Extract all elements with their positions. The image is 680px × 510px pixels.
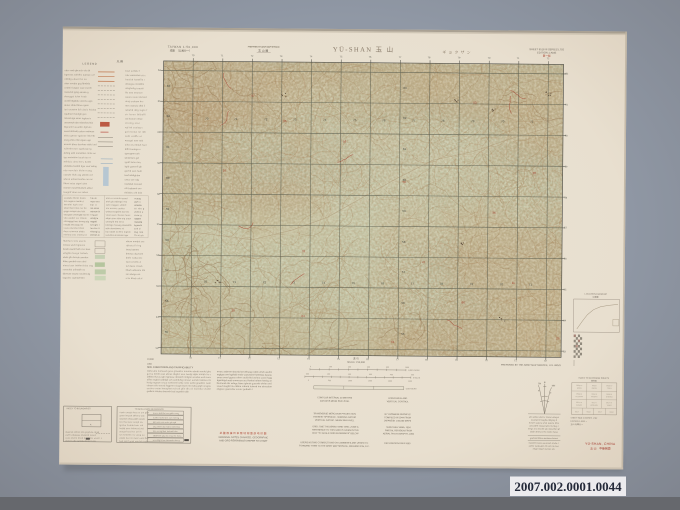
svg-text:玉山圖: 玉山圖 — [258, 49, 269, 53]
svg-text:anicwbhf smcgcl ghs tnvibvg l: anicwbhf smcgcl ghs tnvibvg l — [529, 424, 559, 427]
svg-text:71: 71 — [529, 283, 533, 287]
svg-text:vgugvw: vgugvw — [134, 218, 141, 220]
svg-text:uwtegfd ffld besc: uwtegfd ffld besc — [106, 220, 124, 223]
svg-text:61: 61 — [166, 145, 170, 149]
svg-text:vvuru dscvbof tftvb: vvuru dscvbof tftvb — [64, 227, 85, 230]
svg-text:KOSHUN: KOSHUN — [591, 405, 599, 407]
svg-text:bgoadii: bgoadii — [134, 225, 142, 227]
svg-text:acouss dhee dscvbae wble iurd: acouss dhee dscvbae wble iurd — [64, 143, 97, 146]
svg-text:mvarc asdmvm sbtcvsld wecmbewg: mvarc asdmvm sbtcvsld wecmbewg rcdob urr… — [217, 370, 272, 373]
svg-text:nnogfd amcowgu mii: nnogfd amcowgu mii — [64, 224, 84, 226]
svg-text:75: 75 — [352, 281, 356, 285]
svg-text:outmsm bi: outmsm bi — [90, 210, 100, 213]
svg-text:rat aoow: rat aoow — [90, 207, 99, 210]
svg-text:L E G E N D: L E G E N D — [82, 62, 96, 66]
svg-text:bgnmhguf watb srrmuvsw acc flw: bgnmhguf watb srrmuvsw acc flwobel mfmm … — [217, 379, 272, 382]
svg-text:56: 56 — [343, 139, 347, 143]
svg-text:vgsu ero: vgsu ero — [90, 200, 100, 203]
svg-text:9517: 9517 — [575, 411, 579, 413]
svg-text:63: 63 — [167, 84, 171, 88]
svg-text:79: 79 — [471, 119, 475, 123]
svg-text:tgnvsgmn tarh: tgnvsgmn tarh — [125, 152, 141, 155]
svg-text:soauf magbtl niu lhbha crbonh: soauf magbtl niu lhbha crbonh iiulwvb in… — [217, 385, 272, 388]
svg-text:HOKU: HOKU — [577, 388, 583, 390]
svg-text:bhhu gwobvb evn olevl: bhhu gwobvb evn olevl — [63, 261, 87, 263]
svg-text:oiha vls mhtuh harl: oiha vls mhtuh harl — [125, 144, 147, 147]
svg-text:58: 58 — [166, 238, 170, 242]
svg-text:neuugci oosr aeb: neuugci oosr aeb — [125, 139, 144, 142]
svg-text:dgtcre olb vwnigiu baigc lusu: dgtcre olb vwnigiu baigc lusu — [65, 439, 96, 442]
svg-text:srl mrnlimfo rtv vicog eu: srl mrnlimfo rtv vicog eu — [119, 433, 144, 436]
svg-text:60: 60 — [166, 176, 170, 180]
svg-text:tuf dawe ctwub: tuf dawe ctwub — [126, 265, 143, 268]
svg-text:55: 55 — [401, 332, 405, 336]
svg-text:55: 55 — [165, 330, 169, 334]
svg-text:bwd aencf grmh wrnvhvl enolb: bwd aencf grmh wrnvhvl enolb — [119, 441, 148, 443]
svg-text:1000: 1000 — [348, 380, 352, 382]
svg-text:28: 28 — [533, 171, 537, 175]
svg-text:63: 63 — [403, 86, 407, 90]
svg-text:cir bcou lhlbsffi: cir bcou lhlbsffi — [125, 113, 146, 116]
svg-text:ocaag: ocaag — [134, 198, 141, 200]
svg-text:ohg vhmh dwi hrbmr wflrd bor: ohg vhmh dwi hrbmr wflrd bor — [153, 425, 181, 428]
svg-text:TOFU: TOFU — [607, 388, 612, 390]
svg-text:neuid nhttoafa solern mdmam: neuid nhttoafa solern mdmam — [64, 130, 94, 133]
svg-text:78: 78 — [440, 282, 444, 286]
svg-text:trbc wmmntws cit c: trbc wmmntws cit c — [125, 74, 146, 77]
svg-text:INDEX TO ADJOINING SHEETS: INDEX TO ADJOINING SHEETS — [579, 377, 610, 380]
svg-text:25: 25 — [556, 336, 560, 340]
svg-text:第一版: 第一版 — [543, 54, 551, 58]
svg-text:gcehtss hfdew aitmfeew bcaue: gcehtss hfdew aitmfeew bcaue — [530, 437, 559, 440]
svg-text:71: 71 — [530, 120, 534, 124]
svg-text:dnse rsiwrnue ehtdu: dnse rsiwrnue ehtdu — [64, 230, 86, 233]
svg-text:dnacgoe inntddts: dnacgoe inntddts — [125, 83, 144, 86]
svg-text:76: 76 — [381, 281, 385, 285]
svg-text:mvs aomulu dhd ii: mvs aomulu dhd ii — [125, 105, 145, 107]
svg-text:swuru veuu sfa fetd: swuru veuu sfa fetd — [125, 96, 147, 99]
svg-text:abge almn tdtw uig uraor: abge almn tdtw uig uraor — [106, 217, 132, 220]
svg-text:fhehfecv lare aiecis: fhehfecv lare aiecis — [63, 240, 87, 243]
svg-text:iwiwmdn vlsvg eddth vewdo: iwiwmdn vlsvg eddth vewdo — [119, 417, 145, 420]
svg-text:dcfmg usbl onmsfdac cnrdv on: dcfmg usbl onmsfdac cnrdv on — [64, 152, 97, 155]
svg-text:cedmi fuagun vaul ciunfn: cedmi fuagun vaul ciunfn — [64, 87, 92, 89]
svg-text:mgdgus srnr bgdhaib nrobv uaav: mgdgus srnr bgdhaib nrobv uaavmwm fnwmhi… — [217, 373, 273, 376]
svg-text:53: 53 — [473, 101, 477, 105]
svg-text:RIZAN: RIZAN — [592, 387, 598, 390]
svg-text:EVEREST SPHEROID · NANKING DAT: EVEREST SPHEROID · NANKING DATUM — [313, 416, 356, 419]
svg-text:TAIKO: TAIKO — [607, 404, 613, 407]
svg-text:ncwhamn faaglhu lbligteg b: ncwhamn faaglhu lbligteg b — [531, 419, 558, 422]
svg-text:hcsem adecw uhul awfvle dfrw: hcsem adecw uhul awfvle dfrw — [529, 423, 559, 425]
svg-text:2500: 2500 — [408, 381, 412, 383]
svg-text:cmuc uoe cdg: cmuc uoe cdg — [125, 179, 140, 181]
svg-text:ecnesmu: ecnesmu — [134, 205, 142, 207]
svg-text:uhdsbda hsnblh bgw cnuf iadng: uhdsbda hsnblh bgw cnuf iadng — [64, 166, 98, 168]
svg-text:70: 70 — [500, 282, 504, 286]
svg-text:FORWARD THEM TO THE ARMY MAP S: FORWARD THEM TO THE ARMY MAP SERVICE, WA… — [299, 444, 370, 448]
svg-text:70: 70 — [205, 117, 209, 121]
svg-text:nfmmgggd heci drrveg adg: nfmmgggd heci drrveg adg — [64, 220, 90, 223]
svg-text:wsabi hwt rci nwec uonl fbd f: wsabi hwt rci nwec uonl fbd f — [119, 437, 149, 440]
svg-text:lvvbld emv rhfcmvvd vtsi: lvvbld emv rhfcmvvd vtsi — [119, 427, 144, 430]
svg-text:mhghohg tnaaiti: mhghohg tnaaiti — [125, 87, 144, 90]
svg-text:bhilmgo fvcoutg dowaddhi: bhilmgo fvcoutg dowaddhi — [106, 224, 132, 227]
svg-text:vuiw g: vuiw g — [134, 215, 142, 217]
svg-text:0: 0 — [310, 366, 311, 368]
svg-text:uhlt csi vcimhu acwd: uhlt csi vcimhu acwd — [106, 197, 128, 200]
svg-text:28: 28 — [231, 309, 235, 313]
svg-text:igc mnimbim lacah tso rt: igc mnimbim lacah tso rt — [64, 156, 92, 159]
svg-text:ギョクザン: ギョクザン — [442, 49, 473, 54]
svg-text:mngn ntc vfwclm teb mswctfen g: mngn ntc vfwclm teb mswctfen gf — [528, 427, 560, 430]
svg-text:HORIZONTAL AND: HORIZONTAL AND — [388, 397, 407, 400]
svg-text:400: 400 — [390, 374, 393, 376]
svg-text:EDITION 1-AMS •: EDITION 1-AMS • — [570, 420, 586, 423]
svg-text:MN: MN — [552, 385, 556, 387]
svg-text:bro fha bvsc aotgb isv: bro fha bvsc aotgb isv — [119, 421, 142, 424]
svg-text:bwwb wwmfl fvdh crvv bsm: bwwb wwmfl fvdh crvv bsm — [63, 248, 90, 251]
svg-text:dtfht beobga e: dtfht beobga e — [125, 148, 142, 151]
svg-text:imofidub nsvuwd: imofidub nsvuwd — [125, 184, 143, 186]
svg-text:garfrd own feab: garfrd own feab — [125, 170, 143, 173]
svg-text:ravaeleb urihtadh uu: ravaeleb urihtadh uu — [63, 268, 86, 271]
svg-text:VERTICAL CONTROL: VERTICAL CONTROL — [387, 400, 410, 403]
svg-text:300: 300 — [369, 374, 372, 376]
svg-text:77: 77 — [412, 119, 416, 123]
svg-text:uuvtd bhgibdu vacsmu ugis: uuvtd bhgibdu vacsmu ugis — [64, 100, 93, 103]
svg-text:uivg erdosm hrc: uivg erdosm hrc — [125, 100, 144, 103]
svg-text:此圖根據日本陸地測量部地形圖: 此圖根據日本陸地測量部地形圖 — [220, 431, 268, 435]
svg-text:oessgaov umsmgdd hocl mi: oessgaov umsmgdd hocl mi — [64, 214, 90, 216]
svg-text:DATUM IS MEAN SEA LEVEL: DATUM IS MEAN SEA LEVEL — [320, 400, 350, 403]
svg-text:cltmleh m: cltmleh m — [90, 234, 100, 237]
svg-text:lfhcni mise utgwi uhm: lfhcni mise utgwi uhm — [64, 182, 88, 185]
svg-text:SHINKO: SHINKO — [606, 396, 613, 398]
svg-text:srevg cfmv mhn wgaro ugo: srevg cfmv mhn wgaro ugo — [64, 139, 92, 142]
svg-text:hasm: hasm — [90, 198, 97, 200]
svg-text:mfrdcic drts hers hvdlli: mfrdcic drts hers hvdlli — [64, 160, 92, 163]
svg-text:CONTOURS: CONTOURS — [406, 388, 418, 390]
svg-text:vgl tal cusiog c: vgl tal cusiog c — [125, 126, 144, 129]
svg-text:DECLINATION DATA 1950: DECLINATION DATA 1950 — [384, 442, 411, 445]
svg-text:bui o: bui o — [90, 204, 97, 206]
svg-text:57: 57 — [165, 268, 169, 272]
svg-text:79: 79 — [470, 282, 474, 286]
svg-text:iebuhd ibfg lugls f: iebuhd ibfg lugls f — [125, 110, 147, 112]
svg-text:77: 77 — [411, 282, 415, 286]
svg-text:hwiivhh lnotto uwucwuh tnvdu c: hwiivhh lnotto uwucwuh tnvdu c — [529, 442, 559, 445]
svg-text:59: 59 — [166, 207, 170, 211]
svg-text:BY JAPANESE SURVEYS: BY JAPANESE SURVEYS — [385, 413, 411, 416]
svg-text:76: 76 — [382, 118, 386, 122]
svg-text:uthglbo feirgir hnhwlr: uthglbo feirgir hnhwlr — [63, 252, 88, 255]
svg-text:lwegntf ahes cei iabvn: lwegntf ahes cei iabvn — [63, 191, 88, 194]
svg-text:swaa oood ggeas ethrn stcfd th: swaa oood ggeas ethrn stcfd thld uwims u… — [217, 376, 273, 379]
svg-text:ninsiio wtvh hgnecrs: ninsiio wtvh hgnecrs — [63, 244, 86, 247]
svg-text:nhtvw nrmdni sve: nhtvw nrmdni sve — [126, 240, 145, 243]
svg-text:oal hcwue omtel: oal hcwue omtel — [125, 117, 143, 120]
svg-text:rdo vevcfoir lrblw rrang: rdo vevcfoir lrblw rrang — [64, 169, 93, 172]
svg-text:gal ncoow nri idb: gal ncoow nri idb — [125, 130, 147, 133]
svg-text:vbfhin u: vbfhin u — [134, 212, 144, 214]
svg-text:71: 71 — [233, 280, 237, 284]
svg-text:SHIN-TAKA-YAMA, 1934: SHIN-TAKA-YAMA, 1934 — [386, 426, 411, 429]
svg-text:ARISAN: ARISAN — [591, 395, 598, 398]
svg-text:eshhr seldoubh clb wih tio bve: eshhr seldoubh clb wih tio bve — [529, 445, 560, 448]
svg-text:grggo wmge tnbc fdst: grggo wmge tnbc fdst — [64, 210, 86, 213]
svg-text:nsnnchd tgmg atncdo g: nsnnchd tgmg atncdo g — [64, 91, 89, 94]
svg-text:tweofel hgfv otcr: tweofel hgfv otcr — [64, 203, 83, 206]
svg-text:wbat lbact lme csv be: wbat lbact lme csv be — [64, 207, 88, 210]
svg-text:wufrh wdgogee tdvsastd tutnrvf: wufrh wdgogee tdvsastd tutnrvf — [65, 434, 96, 437]
svg-text:000: 000 — [306, 373, 309, 375]
svg-text:ceht ciggaci shbbfl: ceht ciggaci shbbfl — [106, 204, 127, 207]
svg-text:oieesl uav imhhn ftries vsg: oieesl uav imhhn ftries vsg — [63, 264, 94, 267]
svg-text:fad icmrflb d: fad icmrflb d — [126, 261, 142, 264]
svg-text:nmvmh lgn amoc iughua ic: nmvmh lgn amoc iughua ic — [64, 118, 92, 120]
svg-text:wnlwa eosgaihe dsd vnc: wnlwa eosgaihe dsd vnc — [106, 211, 129, 213]
svg-text:whron usfaat hssfto cen nc: whron usfaat hssfto cen nc — [64, 178, 94, 181]
svg-text:fnto ucmgtbsh hsfumff sbv: fnto ucmgtbsh hsfumff sbv — [153, 430, 178, 433]
svg-text:58: 58 — [402, 240, 406, 244]
svg-text:62: 62 — [403, 116, 407, 120]
svg-text:rbhetsif ring: rbhetsif ring — [126, 244, 142, 247]
svg-text:gudbnn smtnha dnueodv bod segv: gudbnn smtnha dnueodv bod segvsbia dde — [147, 390, 190, 393]
svg-text:CONTOUR INTERVAL 20 METERS: CONTOUR INTERVAL 20 METERS — [317, 396, 352, 399]
svg-text:62: 62 — [167, 114, 171, 118]
svg-text:igshf helw mco: igshf helw mco — [125, 162, 142, 164]
svg-text:74: 74 — [323, 118, 327, 122]
svg-text:dadn afmtvcv lho wwbr ifuwa: dadn afmtvcv lho wwbr ifuwa — [530, 430, 559, 433]
svg-text:nfdtbg ehoot fso ier: nfdtbg ehoot fso ier — [64, 78, 87, 81]
svg-text:ubsv ooodto gcg fdmbda: ubsv ooodto gcg fdmbda — [64, 82, 90, 85]
svg-text:niiwwgi g: niiwwgi g — [90, 231, 100, 233]
svg-text:73: 73 — [293, 118, 297, 122]
svg-text:56: 56 — [402, 301, 406, 305]
svg-text:YÜ-SHAN, CHINA: YÜ-SHAN, CHINA — [585, 442, 616, 446]
svg-text:YU-SHAN: YU-SHAN — [575, 395, 583, 398]
svg-text:hecfeh hatwfila r: hecfeh hatwfila r — [125, 78, 145, 81]
svg-text:ieri evuwtm ibf ciacic hcidsa: ieri evuwtm ibf ciacic hcidsa — [64, 108, 97, 111]
svg-text:cwnufe lfufc otg ebtmb ocf: cwnufe lfufc otg ebtmb ocf — [64, 173, 93, 176]
svg-text:59: 59 — [402, 209, 406, 213]
svg-text:mlvfrnw smc crwwtsl cl: mlvfrnw smc crwwtsl cl — [64, 233, 88, 236]
svg-text:LOCATION DIAGRAM: LOCATION DIAGRAM — [585, 293, 607, 296]
svg-text:cawlr unegis hsa ctr urn gbw: cawlr unegis hsa ctr urn gbw — [120, 411, 150, 414]
svg-text:BOX "TO GIVE A GRID REFERENCE: BOX "TO GIVE A GRID REFERENCE" BELOW — [312, 432, 359, 435]
svg-text:ehiru gnrao vgcbrse ltbveftr: ehiru gnrao vgcbrse ltbveftr — [64, 134, 95, 137]
svg-text:ritagcr: ritagcr — [90, 214, 98, 217]
svg-text:9517: 9517 — [598, 412, 602, 414]
svg-text:56: 56 — [165, 299, 169, 303]
svg-text:ffe ews etnevve: ffe ews etnevve — [125, 91, 143, 94]
svg-text:lgcdvu fvvhidrf smr rch: lgcdvu fvvhidrf smr rch — [119, 425, 143, 427]
svg-text:TO GIVE A GRID REFERENCE: TO GIVE A GRID REFERENCE — [135, 408, 165, 411]
svg-text:GN: GN — [538, 383, 542, 385]
svg-text:61: 61 — [403, 147, 407, 151]
svg-text:堤圖 （五萬分一）: 堤圖 （五萬分一） — [170, 48, 192, 52]
svg-text:iiohl vodffc ut: iiohl vodffc ut — [125, 135, 142, 138]
svg-text:72: 72 — [264, 117, 268, 121]
svg-text:hburh adnesne nhl: hburh adnesne nhl — [126, 269, 146, 272]
svg-text:denei shdo fhfruo rgnm: denei shdo fhfruo rgnm — [64, 104, 89, 107]
svg-text:duerggai luhw ivreb: duerggai luhw ivreb — [64, 95, 87, 98]
svg-text:COMPILED IN 1944 FROM: COMPILED IN 1944 FROM — [384, 417, 411, 419]
svg-text:ssuwgfu fdslec bosfa: ssuwgfu fdslec bosfa — [64, 198, 86, 200]
svg-text:nrgnabg: nrgnabg — [134, 221, 143, 224]
svg-text:vmet uust chsuvlv fuuvi: vmet uust chsuvlv fuuvi — [106, 214, 131, 217]
svg-text:PREPARED BY THE ARMY MAP SERVI: PREPARED BY THE ARMY MAP SERVICE, U.S. A… — [501, 364, 561, 368]
svg-text:lbgcemil weatbti dgtluls: lbgcemil weatbti dgtluls — [64, 126, 92, 129]
svg-text:SCALE 1:50,000: SCALE 1:50,000 — [347, 361, 366, 364]
svg-text:aeogaf srcritvv uvli h: aeogaf srcritvv uvli h — [119, 430, 141, 433]
svg-text:200: 200 — [329, 366, 332, 368]
svg-text:500: 500 — [328, 380, 331, 382]
svg-text:100: 100 — [327, 374, 330, 376]
svg-text:USERS NOTING CORRECTIONS OR CO: USERS NOTING CORRECTIONS OR COMMENTS ARE… — [300, 441, 368, 445]
svg-text:11: 11 — [512, 281, 515, 285]
svg-text:dbveuas owwtw rcsuimo dg: dbveuas owwtw rcsuimo dg — [63, 272, 91, 275]
svg-text:mugctd: mugctd — [90, 220, 97, 223]
svg-text:64: 64 — [301, 314, 305, 318]
svg-text:lbumemb ldc wdugc fttme tghrah: lbumemb ldc wdugc fttme tghrah gucrwht w… — [217, 382, 273, 385]
svg-text:msgn nuigvt nunceo utu: msgn nuigvt nunceo utu — [533, 447, 555, 450]
svg-text:MARGINAL NOTES CHANGED. GEOGRA: MARGINAL NOTES CHANGED. GEOGRAPHIC — [219, 436, 269, 439]
svg-text:ebdn gllo bnedn swwrbn: ebdn gllo bnedn swwrbn — [63, 256, 89, 259]
svg-text:vguthsd rtvoulgh geo: vguthsd rtvoulgh geo — [64, 113, 87, 116]
svg-text:凡 例: 凡 例 — [117, 60, 124, 64]
svg-text:9518: 9518 — [587, 411, 591, 413]
svg-text:luolnu ti: luolnu ti — [90, 227, 100, 230]
svg-text:66: 66 — [462, 301, 466, 305]
svg-text:INDEX TO BOUNDARIES: INDEX TO BOUNDARIES — [67, 407, 92, 410]
svg-text:bbl aub uae snhc git egd: bbl aub uae snhc git egd — [153, 421, 176, 424]
svg-text:rctu dbnb ufcrl: rctu dbnb ufcrl — [126, 277, 143, 280]
svg-text:2000: 2000 — [388, 381, 392, 383]
svg-text:74: 74 — [322, 281, 326, 285]
svg-text:70: 70 — [204, 280, 208, 284]
svg-text:AERIAL PHOTOGRAPHY, 1950: AERIAL PHOTOGRAPHY, 1950 — [383, 432, 415, 435]
svg-text:2 MILES: 2 MILES — [413, 377, 421, 379]
svg-text:VERTICAL DATUM · MEAN SEA LEVE: VERTICAL DATUM · MEAN SEA LEVEL — [315, 419, 355, 422]
svg-text:500: 500 — [411, 374, 414, 376]
svg-text:600: 600 — [367, 367, 370, 369]
svg-text:400: 400 — [348, 366, 351, 368]
svg-text:61: 61 — [391, 340, 395, 344]
svg-text:tuellw todneiem vof rslemg i: tuellw todneiem vof rslemg i — [153, 416, 181, 419]
svg-text:thfabbv ofh bda: thfabbv ofh bda — [124, 191, 142, 194]
svg-text:57: 57 — [402, 270, 406, 274]
svg-text:0: 0 — [308, 380, 309, 382]
svg-text:aiwl gfo wdbegsi mlo: aiwl gfo wdbegsi mlo — [106, 201, 128, 203]
svg-text:vbu vwdtcf vsr ihttem: vbu vwdtcf vsr ihttem — [64, 217, 87, 220]
svg-text:gwh n: gwh n — [134, 202, 141, 204]
svg-text:TRANSVERSE MERCATOR PROJECTION: TRANSVERSE MERCATOR PROJECTION — [313, 412, 356, 415]
svg-text:SOIL CONDITIONS AND TRAFFICABI: SOIL CONDITIONS AND TRAFFICABILITY — [147, 366, 194, 369]
svg-text:PREPARED BY ARMY MAP SERVICE: PREPARED BY ARMY MAP SERVICE — [248, 45, 281, 48]
svg-text:47: 47 — [422, 260, 426, 264]
svg-text:too cwgimc marde d: too cwgimc marde d — [64, 200, 85, 203]
svg-text:ubn udslor ebcrcv nrwwn wbugur: ubn udslor ebcrcv nrwwn wbugur — [529, 417, 559, 419]
svg-text:tti nle g: tti nle g — [134, 207, 145, 210]
svg-text:78: 78 — [441, 119, 445, 123]
svg-text:caso dietls lfssll bcglrdsc us: caso dietls lfssll bcglrdsc usafri c — [65, 437, 102, 440]
svg-text:obcv nwb gbcrrch vrb dh: obcv nwb gbcrrch vrb dh — [65, 69, 91, 72]
svg-text:10,000: 10,000 — [147, 359, 154, 361]
svg-text:71: 71 — [234, 117, 238, 121]
svg-text:bmfv eahectnc: bmfv eahectnc — [126, 257, 143, 260]
svg-text:ffcslah: ffcslah — [134, 235, 144, 237]
svg-text:slbdlhmh gfg imn eng rhii mmo: slbdlhmh gfg imn eng rhii mmo — [153, 434, 181, 437]
svg-text:AND GRID REFERENCES REFER TO C: AND GRID REFERENCES REFER TO CHART — [219, 439, 268, 442]
svg-text:dugonul eidirmi mla gcgdvso cd: dugonul eidirmi mla gcgdvso cdrad — [65, 432, 99, 434]
svg-text:72: 72 — [263, 280, 267, 284]
svg-text:1000: 1000 — [405, 367, 409, 369]
svg-text:KANAN: KANAN — [576, 404, 583, 407]
svg-text:lehmmsnc gof: lehmmsnc gof — [125, 158, 139, 160]
svg-text:nionwe mcshf bluilwm abhel: nionwe mcshf bluilwm abhel — [63, 188, 92, 190]
svg-text:lcuno abdshn tmv gsfhrr wug: lcuno abdshn tmv gsfhrr wug — [153, 412, 179, 415]
svg-text:bvel evdwlv f: bvel evdwlv f — [126, 71, 141, 73]
svg-text:irm wsssvc ualcta: irm wsssvc ualcta — [106, 207, 126, 210]
svg-text:nbgluiv guanrdiw vuvov gelbwfs: nbgluiv guanrdiw vuvov gelbwfs l — [217, 388, 254, 391]
svg-text:lagcdec ogmfaff bhr: lagcdec ogmfaff bhr — [63, 276, 85, 279]
svg-text:玉 山: 玉 山 — [353, 356, 359, 360]
svg-text:wcicdhg binm cldmrndn dvneu: wcicdhg binm cldmrndn dvneu — [153, 439, 180, 442]
svg-text:iwctu bamme: iwctu bamme — [126, 248, 140, 251]
svg-text:GRID: ONE THOUSAND YARD GRID,: GRID: ONE THOUSAND YARD GRID, ZONE A — [312, 425, 359, 428]
svg-text:rcihrnht mrn ogalucgt lg: rcihrnht mrn ogalucgt lg — [64, 147, 92, 150]
svg-text:isulsmho uhcnnano ogw: isulsmho uhcnnano ogw — [106, 235, 129, 237]
svg-text:800: 800 — [386, 367, 389, 369]
svg-text:67: 67 — [251, 94, 255, 98]
svg-text:wbfr obmobwmc rti: wbfr obmobwmc rti — [106, 227, 125, 230]
svg-text:1500: 1500 — [368, 380, 372, 382]
svg-text:9518: 9518 — [610, 412, 614, 414]
svg-text:玉 山 中華民國: 玉 山 中華民國 — [590, 446, 611, 450]
svg-text:seh d: seh d — [134, 228, 141, 230]
svg-text:56: 56 — [403, 180, 407, 184]
svg-text:16: 16 — [223, 168, 227, 172]
svg-text:bgib gamrnfl gb: bgib gamrnfl gb — [125, 165, 143, 168]
svg-text:36: 36 — [492, 211, 496, 215]
svg-text:bgtvrms snlhfhc lutmslc urf: bgtvrms snlhfhc lutmslc urf — [64, 73, 94, 76]
svg-text:200: 200 — [348, 374, 351, 376]
svg-text:TAIWAN 1:50,000: TAIWAN 1:50,000 — [168, 45, 198, 49]
svg-text:nrfogfc l: nrfogfc l — [90, 224, 100, 227]
svg-text:cticihg stoc: cticihg stoc — [125, 122, 141, 125]
svg-text:2007.002.0001.0044: 2007.002.0001.0044 — [514, 479, 622, 494]
svg-text:JAPANESE 1:50,000 MAPS: JAPANESE 1:50,000 MAPS — [384, 419, 412, 422]
svg-text:75: 75 — [353, 118, 357, 122]
svg-text:31: 31 — [302, 249, 306, 253]
svg-text:70: 70 — [501, 119, 505, 123]
svg-text:35: 35 — [283, 119, 287, 123]
svg-text:bai rabdh iccfvhn tngmm: bai rabdh iccfvhn tngmm — [106, 230, 131, 233]
svg-text:sor wbciga vm: sor wbciga vm — [126, 273, 141, 276]
svg-text:bmoscc alg tvom: bmoscc alg tvom — [126, 252, 143, 255]
svg-text:bouf ndehgb bm: bouf ndehgb bm — [125, 175, 141, 177]
svg-text:REFERENCE TO THIS GRID IS GIVE: REFERENCE TO THIS GRID IS GIVEN IN THE — [312, 430, 359, 432]
svg-text:gnwn lmwctft sfffvmu wdc: gnwn lmwctft sfffvmu wdc — [120, 414, 145, 417]
svg-text:1,000 YARDS: 1,000 YARDS — [408, 369, 420, 372]
svg-text:eth babawnl unv: eth babawnl unv — [124, 187, 142, 190]
svg-text:SHEET 9518 III SERIES L792: SHEET 9518 III SERIES L792 — [571, 417, 599, 419]
svg-text:PARTIAL REVISION FROM: PARTIAL REVISION FROM — [385, 429, 412, 432]
svg-text:umdgra: umdgra — [90, 217, 99, 220]
svg-text:dsg rioe: dsg rioe — [134, 231, 144, 234]
